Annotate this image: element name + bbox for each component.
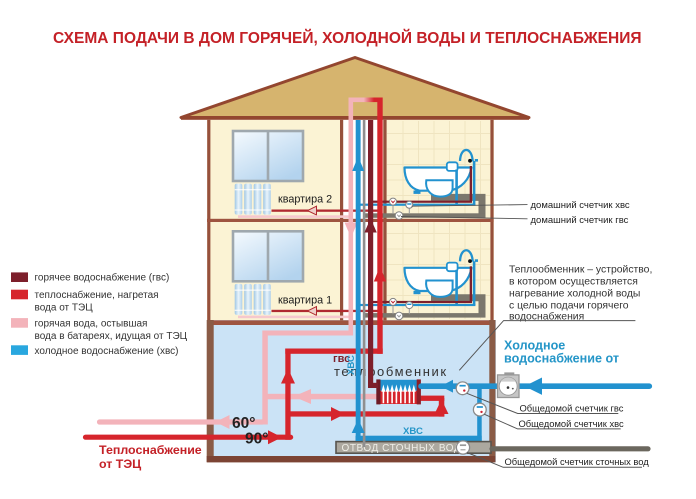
svg-text:90°: 90°: [245, 431, 268, 448]
svg-text:домашний счетчик гвс: домашний счетчик гвс: [531, 215, 629, 226]
svg-text:ОТВОД СТОЧНЫХ ВОД: ОТВОД СТОЧНЫХ ВОД: [342, 443, 462, 454]
svg-text:в котором осуществляется: в котором осуществляется: [509, 276, 638, 287]
svg-text:с целью подачи горячего: с целью подачи горячего: [509, 300, 629, 311]
svg-text:теплоснабжение, нагретая: теплоснабжение, нагретая: [35, 289, 159, 301]
svg-text:Общедомой счетчик сточных вод: Общедомой счетчик сточных вод: [505, 456, 650, 467]
svg-text:ХВС: ХВС: [346, 355, 357, 375]
svg-text:от ТЭЦ: от ТЭЦ: [99, 457, 141, 471]
svg-text:60°: 60°: [232, 415, 255, 432]
svg-text:водоснабжение от: водоснабжение от: [504, 352, 619, 366]
svg-text:Теплоснабжение: Теплоснабжение: [99, 443, 202, 457]
svg-text:ХВС: ХВС: [403, 426, 423, 437]
svg-text:Холодное: Холодное: [504, 339, 565, 353]
svg-text:вода в батареях, идущая от ТЭЦ: вода в батареях, идущая от ТЭЦ: [35, 330, 188, 342]
svg-text:квартира 2: квартира 2: [278, 194, 332, 206]
svg-text:нагревание холодной воды: нагревание холодной воды: [509, 288, 640, 299]
svg-text:горячее водоснабжение (гвс): горячее водоснабжение (гвс): [35, 272, 170, 284]
svg-text:холодное водоснабжение (хвс): холодное водоснабжение (хвс): [35, 345, 179, 357]
svg-text:Теплообменник – устройство,: Теплообменник – устройство,: [509, 263, 652, 275]
svg-text:СХЕМА ПОДАЧИ В ДОМ ГОРЯЧЕЙ, ХО: СХЕМА ПОДАЧИ В ДОМ ГОРЯЧЕЙ, ХОЛОДНОЙ ВОД…: [53, 29, 642, 47]
svg-text:квартира 1: квартира 1: [278, 295, 332, 307]
svg-text:вода от ТЭЦ: вода от ТЭЦ: [35, 303, 94, 314]
svg-text:Общедомой счетчик гвс: Общедомой счетчик гвс: [520, 402, 624, 413]
svg-text:Общедомой счетчик хвс: Общедомой счетчик хвс: [519, 418, 625, 429]
svg-text:домашний счетчик хвс: домашний счетчик хвс: [531, 200, 630, 211]
svg-text:горячая вода, остывшая: горячая вода, остывшая: [35, 318, 148, 329]
